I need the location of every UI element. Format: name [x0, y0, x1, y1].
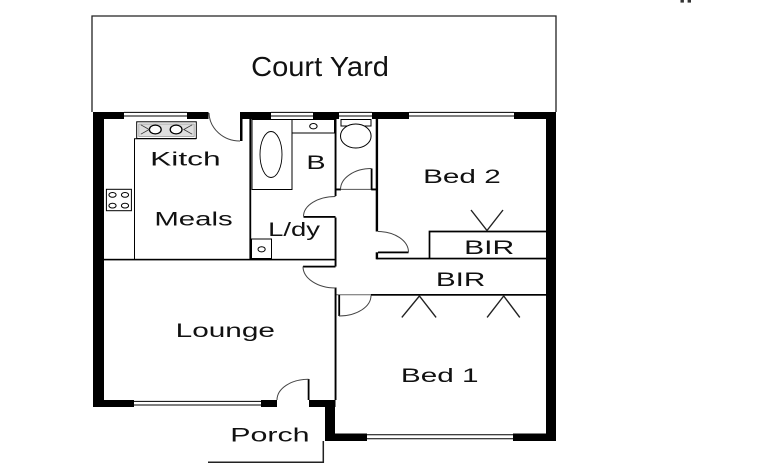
svg-text:Bed 2: Bed 2 [423, 166, 501, 188]
svg-text:B: B [306, 152, 325, 173]
svg-text:Kitch: Kitch [150, 147, 221, 169]
svg-text:BIR: BIR [464, 237, 514, 259]
svg-text:Porch: Porch [230, 425, 309, 446]
svg-text:Meals: Meals [154, 208, 232, 230]
svg-text:BIR: BIR [436, 269, 486, 291]
svg-text:Court Yard: Court Yard [251, 51, 389, 82]
svg-text:Bed 1: Bed 1 [401, 365, 479, 387]
svg-text:Lounge: Lounge [176, 320, 275, 341]
svg-text:L/dy: L/dy [268, 219, 320, 241]
